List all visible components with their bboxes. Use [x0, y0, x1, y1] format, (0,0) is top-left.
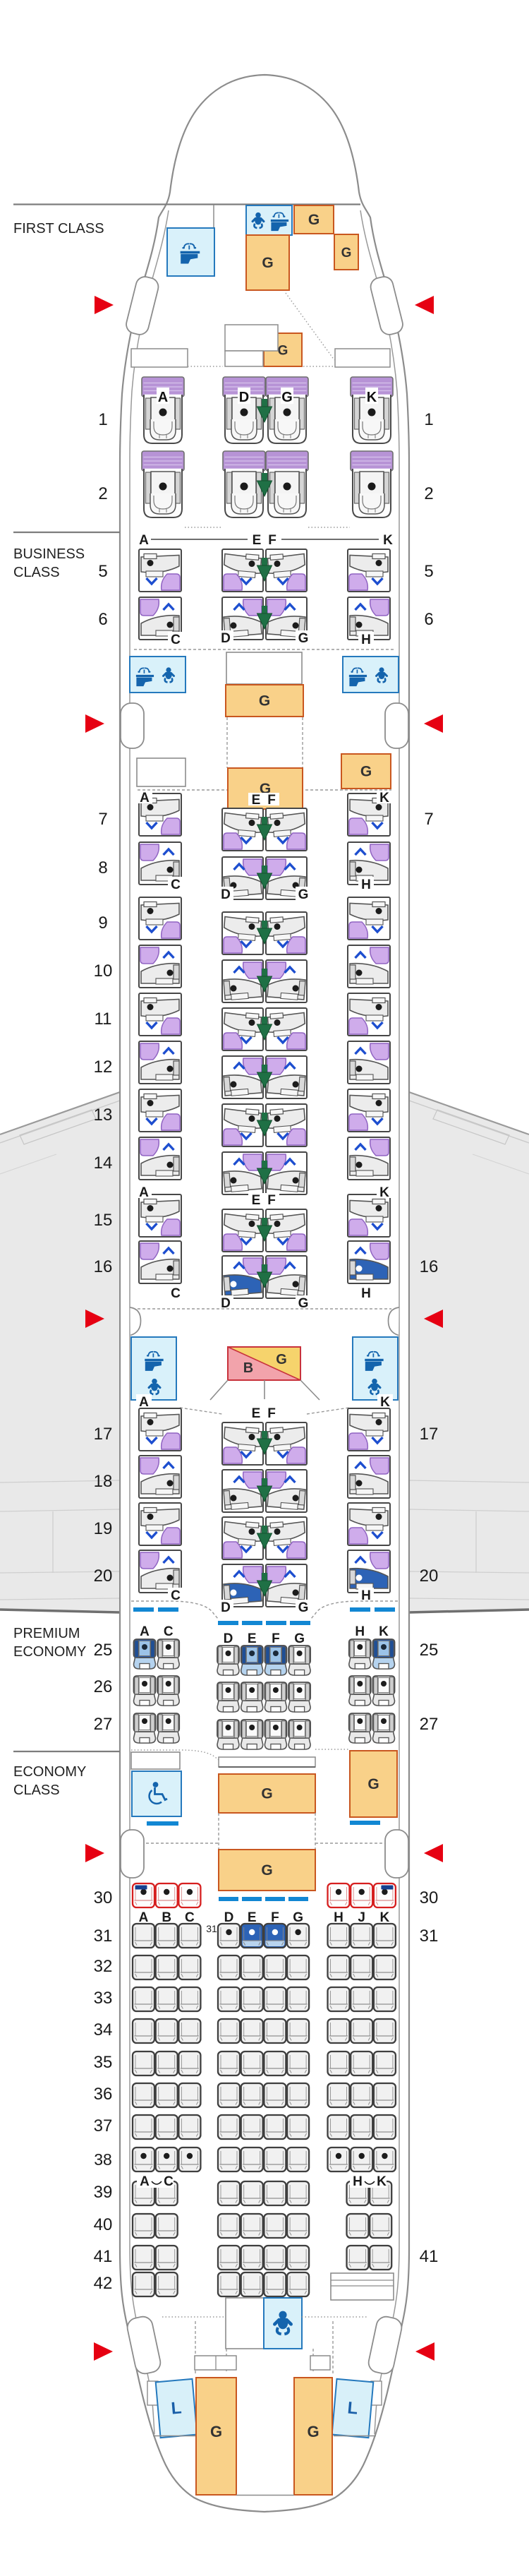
- svg-text:G: G: [278, 344, 288, 359]
- svg-text:5: 5: [98, 562, 107, 581]
- svg-text:CLASS: CLASS: [13, 565, 60, 580]
- svg-text:CLASS: CLASS: [13, 1783, 60, 1798]
- svg-text:G: G: [360, 764, 372, 780]
- svg-text:6: 6: [98, 610, 107, 629]
- svg-text:ECONOMY: ECONOMY: [13, 1644, 86, 1660]
- svg-text:C: C: [164, 1624, 174, 1639]
- svg-text:39: 39: [94, 2183, 113, 2202]
- svg-text:A: A: [140, 791, 150, 805]
- svg-text:A: A: [139, 1395, 149, 1410]
- svg-text:G: G: [281, 390, 293, 405]
- svg-text:D: D: [239, 390, 249, 405]
- svg-text:27: 27: [94, 1715, 113, 1734]
- svg-text:G: G: [298, 631, 309, 646]
- svg-text:1: 1: [98, 410, 107, 429]
- svg-text:K: K: [379, 1185, 389, 1200]
- svg-text:K: K: [367, 390, 377, 405]
- svg-text:G: G: [298, 887, 309, 902]
- svg-text:H: H: [353, 2174, 363, 2189]
- svg-text:H: H: [361, 877, 371, 892]
- svg-text:17: 17: [94, 1425, 113, 1444]
- svg-text:D: D: [221, 631, 231, 646]
- svg-text:G: G: [308, 212, 320, 228]
- svg-text:5: 5: [424, 562, 433, 581]
- svg-text:11: 11: [95, 1010, 112, 1029]
- svg-text:15: 15: [94, 1211, 113, 1230]
- svg-text:1: 1: [424, 410, 433, 429]
- svg-text:30: 30: [94, 1888, 113, 1907]
- svg-text:40: 40: [94, 2215, 113, 2234]
- svg-text:16: 16: [420, 1257, 439, 1276]
- svg-text:A: A: [158, 390, 168, 405]
- svg-text:L: L: [346, 2398, 358, 2418]
- svg-text:36: 36: [94, 2085, 113, 2104]
- svg-text:G: G: [276, 1352, 287, 1367]
- svg-text:41: 41: [94, 2247, 113, 2266]
- svg-text:10: 10: [94, 961, 113, 981]
- svg-text:C: C: [164, 2174, 174, 2189]
- svg-text:19: 19: [94, 1519, 113, 1538]
- svg-text:E: E: [252, 1193, 261, 1208]
- svg-text:ECONOMY: ECONOMY: [13, 1764, 86, 1780]
- svg-text:13: 13: [94, 1106, 113, 1125]
- svg-text:C: C: [171, 1286, 181, 1301]
- svg-text:G: G: [210, 2423, 222, 2440]
- svg-text:2: 2: [98, 484, 107, 503]
- svg-text:G: G: [294, 1631, 305, 1646]
- svg-text:F: F: [267, 1193, 276, 1208]
- svg-text:H: H: [361, 633, 371, 647]
- svg-text:G: G: [262, 255, 273, 271]
- svg-text:G: G: [261, 1786, 272, 1802]
- svg-text:16: 16: [94, 1257, 113, 1276]
- svg-text:E: E: [252, 793, 261, 808]
- svg-text:F: F: [268, 533, 276, 548]
- svg-text:25: 25: [94, 1641, 113, 1660]
- svg-text:27: 27: [420, 1715, 439, 1734]
- svg-text:34: 34: [94, 2020, 113, 2039]
- svg-text:42: 42: [94, 2274, 113, 2293]
- svg-text:FIRST CLASS: FIRST CLASS: [13, 221, 104, 236]
- svg-text:K: K: [377, 2174, 387, 2189]
- svg-text:A: A: [140, 2174, 150, 2189]
- svg-text:41: 41: [420, 2247, 439, 2266]
- svg-text:32: 32: [94, 1957, 113, 1976]
- svg-text:A: A: [139, 1185, 149, 1200]
- svg-text:B: B: [243, 1360, 253, 1376]
- svg-text:2: 2: [424, 484, 433, 503]
- svg-text:D: D: [221, 887, 231, 902]
- svg-text:K: K: [379, 791, 389, 805]
- svg-text:35: 35: [94, 2053, 113, 2072]
- svg-text:6: 6: [424, 610, 433, 629]
- svg-text:8: 8: [98, 858, 107, 877]
- svg-text:L: L: [171, 2398, 183, 2418]
- svg-text:37: 37: [94, 2116, 113, 2135]
- svg-text:7: 7: [98, 810, 107, 829]
- svg-text:G: G: [367, 1776, 379, 1792]
- svg-text:31: 31: [420, 1927, 439, 1946]
- svg-text:31: 31: [94, 1927, 113, 1946]
- svg-text:H: H: [355, 1624, 365, 1639]
- svg-text:38: 38: [94, 2150, 112, 2169]
- svg-text:F: F: [272, 1631, 280, 1646]
- svg-text:33: 33: [94, 1989, 113, 2008]
- svg-text:G: G: [341, 246, 352, 260]
- svg-text:A: A: [139, 533, 149, 548]
- svg-text:18: 18: [94, 1472, 113, 1491]
- svg-text:20: 20: [420, 1566, 439, 1586]
- svg-text:9: 9: [98, 913, 107, 933]
- svg-text:25: 25: [420, 1641, 439, 1660]
- svg-text:A: A: [140, 1624, 150, 1639]
- svg-text:K: K: [379, 1624, 389, 1639]
- svg-text:K: K: [383, 533, 393, 548]
- svg-text:E: E: [252, 1406, 261, 1421]
- svg-text:H: H: [361, 1286, 371, 1301]
- svg-text:G: G: [261, 1862, 272, 1879]
- svg-text:17: 17: [420, 1425, 439, 1444]
- svg-text:D: D: [221, 1600, 231, 1615]
- svg-text:G: G: [259, 693, 270, 709]
- svg-text:30: 30: [420, 1888, 439, 1907]
- svg-text:12: 12: [94, 1058, 113, 1077]
- svg-text:26: 26: [94, 1677, 113, 1696]
- svg-text:G: G: [307, 2423, 319, 2440]
- svg-text:C: C: [171, 633, 181, 647]
- svg-text:E: E: [248, 1631, 257, 1646]
- svg-text:D: D: [224, 1631, 233, 1646]
- svg-text:20: 20: [94, 1566, 113, 1586]
- svg-text:F: F: [267, 1406, 276, 1421]
- svg-text:G: G: [298, 1600, 309, 1615]
- svg-text:F: F: [267, 793, 276, 808]
- svg-text:PREMIUM: PREMIUM: [13, 1626, 80, 1641]
- svg-text:BUSINESS: BUSINESS: [13, 546, 85, 562]
- svg-text:7: 7: [424, 810, 433, 829]
- svg-text:14: 14: [94, 1154, 113, 1173]
- svg-text:31: 31: [206, 1923, 217, 1934]
- svg-text:K: K: [380, 1395, 390, 1410]
- svg-text:E: E: [253, 533, 262, 548]
- svg-text:C: C: [171, 877, 181, 892]
